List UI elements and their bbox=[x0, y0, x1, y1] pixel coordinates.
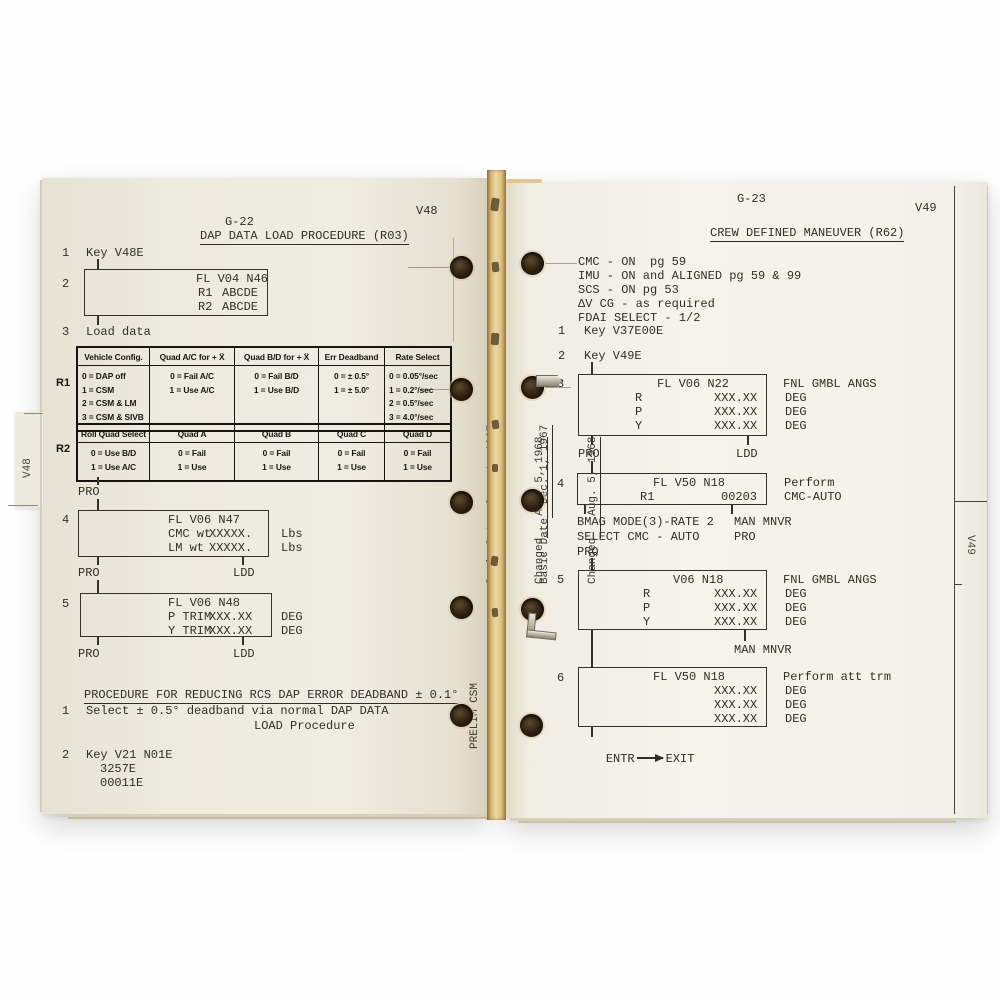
punch-hole bbox=[450, 256, 473, 279]
page-title: CREW DEFINED MANEUVER (R62) bbox=[710, 226, 904, 242]
pro-label: PRO bbox=[734, 530, 756, 544]
connector-line bbox=[731, 504, 733, 514]
changed-label: Changed bbox=[587, 538, 599, 584]
connector-line bbox=[97, 499, 99, 510]
connector-line bbox=[242, 636, 244, 645]
box-title: FL V06 N47 bbox=[168, 513, 240, 527]
prelim-csm-label: PRELIM CSM bbox=[468, 661, 483, 749]
step-number: 1 bbox=[62, 246, 69, 260]
step-number: 3 bbox=[62, 325, 69, 339]
box-row-label: Y bbox=[643, 615, 650, 629]
pro-label: PRO bbox=[78, 485, 100, 499]
checklist-photo: V48 V49 G-22 V48 DAP DATA LOAD PROCEDURE… bbox=[0, 0, 1000, 1000]
page-title: DAP DATA LOAD PROCEDURE (R03) bbox=[200, 229, 409, 245]
box-row-label: R1 bbox=[198, 286, 212, 300]
fold-crease bbox=[453, 238, 454, 342]
pro-label: PRO bbox=[78, 566, 100, 580]
basic-date-label: Basic Date bbox=[539, 518, 551, 584]
box-row-label: R2 bbox=[198, 300, 212, 314]
table-header-cell: Vehicle Config. bbox=[78, 348, 149, 366]
box-title: FL V50 N18 bbox=[653, 476, 725, 490]
table-cell: 0 = Fail A/C1 = Use A/C bbox=[149, 366, 234, 430]
box-row-value: XXX.XX bbox=[714, 587, 757, 601]
edge-tab-label-v48: V48 bbox=[21, 448, 37, 478]
connector-line bbox=[744, 629, 746, 641]
gutter-scribble bbox=[491, 262, 499, 273]
table-header-cell: Quad A bbox=[149, 425, 234, 443]
entr-exit-row: ENTREXIT bbox=[577, 738, 694, 780]
tab-tick bbox=[954, 501, 987, 502]
gutter-scribble bbox=[492, 608, 499, 617]
unit-label: DEG bbox=[785, 684, 807, 698]
box-row-label: R bbox=[635, 391, 642, 405]
box-title: FL V04 N46 bbox=[196, 272, 268, 286]
action-text: MAN MNVR bbox=[734, 515, 792, 529]
connector-line bbox=[97, 477, 99, 485]
connector-line bbox=[97, 580, 99, 593]
action-text: MAN MNVR bbox=[734, 643, 792, 657]
box-row-value: ABCDE bbox=[222, 286, 258, 300]
punch-hole bbox=[450, 704, 473, 727]
basic-date-block: Basic DateDec. 1, 1967 ChangedAug. 5, 19… bbox=[505, 388, 539, 584]
table-header-cell: Quad C bbox=[318, 425, 384, 443]
gutter-scribble bbox=[491, 420, 499, 430]
connector-line bbox=[97, 259, 99, 269]
box-row-value: XXX.XX bbox=[714, 601, 757, 615]
binder-clip bbox=[536, 375, 562, 387]
table-header-cell: Quad B/D for + Ẍ bbox=[234, 348, 318, 366]
box-row-label: Y bbox=[635, 419, 642, 433]
gutter-scribble bbox=[492, 464, 498, 472]
dap-table-r2: Roll Quad Select Quad A Quad B Quad C Qu… bbox=[76, 423, 452, 482]
table-header-cell: Quad B bbox=[234, 425, 318, 443]
basic-date-block: Basic DateDec. 1, 1967 ChangedAug. 5, 19… bbox=[452, 388, 486, 584]
box-note: FNL GMBL ANGS bbox=[783, 377, 877, 391]
step-number: 2 bbox=[62, 277, 69, 291]
box-row-value: XXXXX. bbox=[209, 527, 252, 541]
step-number: 5 bbox=[62, 597, 69, 611]
config-item: IMU - ON and ALIGNED pg 59 & 99 bbox=[578, 269, 801, 283]
unit-label: Lbs bbox=[281, 541, 303, 555]
step-text: Load data bbox=[86, 325, 151, 339]
unit-label: DEG bbox=[785, 419, 807, 433]
pro-label: PRO bbox=[78, 647, 100, 661]
box-row-label: R1 bbox=[640, 490, 654, 504]
box-row-value: XXX.XX bbox=[714, 615, 757, 629]
table-cell: 0 = ± 0.5°1 = ± 5.0° bbox=[318, 366, 384, 430]
box-row-value: ABCDE bbox=[222, 300, 258, 314]
punch-hole bbox=[521, 489, 544, 512]
step-text: LOAD Procedure bbox=[254, 719, 355, 733]
punch-hole bbox=[450, 491, 473, 514]
box-row-value: XXX.XX bbox=[714, 698, 757, 712]
hole-crease bbox=[408, 267, 452, 268]
unit-label: DEG bbox=[785, 698, 807, 712]
box-row-label: P bbox=[643, 601, 650, 615]
connector-line bbox=[97, 315, 99, 325]
unit-label: DEG bbox=[785, 587, 807, 601]
box-note: Perform bbox=[784, 476, 834, 490]
step-number: 2 bbox=[62, 748, 69, 762]
gutter-scribble bbox=[490, 556, 498, 567]
unit-label: DEG bbox=[785, 615, 807, 629]
step-number: 6 bbox=[557, 671, 564, 685]
unit-label: DEG bbox=[281, 624, 303, 638]
ldd-label: LDD bbox=[233, 647, 255, 661]
sub-procedure-title: PROCEDURE FOR REDUCING RCS DAP ERROR DEA… bbox=[84, 688, 458, 704]
step-text: Key V49E bbox=[584, 349, 642, 363]
tab-tick bbox=[8, 505, 38, 506]
step-text: Key V37E00E bbox=[584, 324, 663, 338]
page-edge-stack bbox=[518, 821, 956, 823]
table-cell: 0 = Fail1 = Use bbox=[234, 443, 318, 480]
left-page-edge bbox=[40, 180, 42, 812]
register-label-r2: R2 bbox=[56, 443, 70, 455]
unit-label: DEG bbox=[785, 712, 807, 726]
exit-label: EXIT bbox=[666, 752, 695, 766]
corner-tab-label: V48 bbox=[416, 204, 438, 218]
box-title: V06 N18 bbox=[673, 573, 723, 587]
register-label-r1: R1 bbox=[56, 377, 70, 389]
punch-hole bbox=[450, 596, 473, 619]
step-number: 2 bbox=[558, 349, 565, 363]
tab-tick bbox=[24, 413, 43, 414]
page-edge-stack bbox=[506, 179, 542, 183]
binder-pin-part bbox=[526, 629, 557, 640]
connector-line bbox=[591, 726, 593, 737]
box-row-label: P TRIM bbox=[168, 610, 211, 624]
box-note: Perform att trm bbox=[783, 670, 891, 684]
table-header-cell: Quad D bbox=[384, 425, 450, 443]
box-row-value: XXX.XX bbox=[714, 391, 757, 405]
table-cell: 0 = Fail1 = Use bbox=[149, 443, 234, 480]
config-item: FDAI SELECT - 1/2 bbox=[578, 311, 700, 325]
table-cell: 0 = Fail1 = Use bbox=[318, 443, 384, 480]
step-number: 1 bbox=[558, 324, 565, 338]
box-row-label: CMC wt bbox=[168, 527, 211, 541]
box-row-label: Y TRIM bbox=[168, 624, 211, 638]
table-cell: 0 = 0.05°/sec1 = 0.2°/sec 2 = 0.5°/sec3 … bbox=[384, 366, 450, 430]
table-cell: 0 = Fail1 = Use bbox=[384, 443, 450, 480]
unit-label: Lbs bbox=[281, 527, 303, 541]
connector-line bbox=[242, 556, 244, 565]
ldd-label: LDD bbox=[233, 566, 255, 580]
ldd-label: LDD bbox=[736, 447, 758, 461]
changed-value: Aug. 5, 1968 bbox=[587, 437, 601, 538]
config-item: CMC - ON pg 59 bbox=[578, 255, 686, 269]
folio-number: G-23 bbox=[737, 192, 766, 206]
step-text: 3257E bbox=[100, 762, 136, 776]
box-row-value: XXX.XX bbox=[714, 712, 757, 726]
step-number: 4 bbox=[62, 513, 69, 527]
punch-hole bbox=[521, 252, 544, 275]
step-text: 00011E bbox=[100, 776, 143, 790]
connector-line bbox=[97, 556, 99, 565]
right-page-edge bbox=[987, 186, 988, 814]
table-cell: 0 = Use B/D1 = Use A/C bbox=[78, 443, 149, 480]
punch-hole bbox=[450, 378, 473, 401]
box-row-label: P bbox=[635, 405, 642, 419]
gutter-scribble bbox=[491, 333, 500, 346]
box-row-value: XXX.XX bbox=[209, 624, 252, 638]
table-cell: 0 = Fail B/D1 = Use B/D bbox=[234, 366, 318, 430]
box-title: FL V50 N18 bbox=[653, 670, 725, 684]
table-header-cell: Rate Select bbox=[384, 348, 450, 366]
unit-label: DEG bbox=[281, 610, 303, 624]
box-row-label: LM wt bbox=[168, 541, 204, 555]
step-text: Select ± 0.5° deadband via normal DAP DA… bbox=[86, 704, 388, 718]
arrow-icon bbox=[637, 757, 663, 759]
table-header-cell: Quad A/C for + Ẍ bbox=[149, 348, 234, 366]
punch-hole bbox=[520, 714, 543, 737]
connector-line bbox=[591, 629, 593, 667]
step-text: Key V48E bbox=[86, 246, 144, 260]
entr-label: ENTR bbox=[606, 752, 635, 766]
config-item: SCS - ON pg 53 bbox=[578, 283, 679, 297]
box-title: FL V06 N48 bbox=[168, 596, 240, 610]
box-row-value: 00203 bbox=[721, 490, 757, 504]
tab-rule-line bbox=[954, 186, 955, 814]
binder-pin bbox=[526, 612, 561, 645]
box-note: CMC-AUTO bbox=[784, 490, 842, 504]
connector-line bbox=[591, 362, 593, 374]
tab-tick bbox=[954, 584, 962, 585]
box-row-value: XXX.XX bbox=[714, 419, 757, 433]
folio-number: G-22 bbox=[225, 215, 254, 229]
hole-crease bbox=[545, 263, 577, 264]
unit-label: DEG bbox=[785, 405, 807, 419]
config-item: ΔV CG - as required bbox=[578, 297, 715, 311]
table-header-cell: Roll Quad Select bbox=[78, 425, 149, 443]
box-row-value: XXX.XX bbox=[714, 684, 757, 698]
box-row-value: XXX.XX bbox=[714, 405, 757, 419]
connector-line bbox=[97, 636, 99, 645]
step-number: 1 bbox=[62, 704, 69, 718]
corner-tab-label: V49 bbox=[915, 201, 937, 215]
table-cell: 0 = DAP off1 = CSM 2 = CSM & LM3 = CSM &… bbox=[78, 366, 149, 430]
box-row-label: R bbox=[643, 587, 650, 601]
box-row-value: XXXXX. bbox=[209, 541, 252, 555]
unit-label: DEG bbox=[785, 391, 807, 405]
step-text: Key V21 N01E bbox=[86, 748, 172, 762]
unit-label: DEG bbox=[785, 601, 807, 615]
box-row-value: XXX.XX bbox=[209, 610, 252, 624]
dap-table-r1: Vehicle Config. Quad A/C for + Ẍ Quad B/… bbox=[76, 346, 452, 432]
box-title: FL V06 N22 bbox=[657, 377, 729, 391]
table-header-cell: Err Deadband bbox=[318, 348, 384, 366]
edge-tab-label-v49: V49 bbox=[961, 535, 977, 565]
page-edge-stack bbox=[68, 817, 488, 819]
box-note: FNL GMBL ANGS bbox=[783, 573, 877, 587]
connector-line bbox=[747, 436, 749, 445]
